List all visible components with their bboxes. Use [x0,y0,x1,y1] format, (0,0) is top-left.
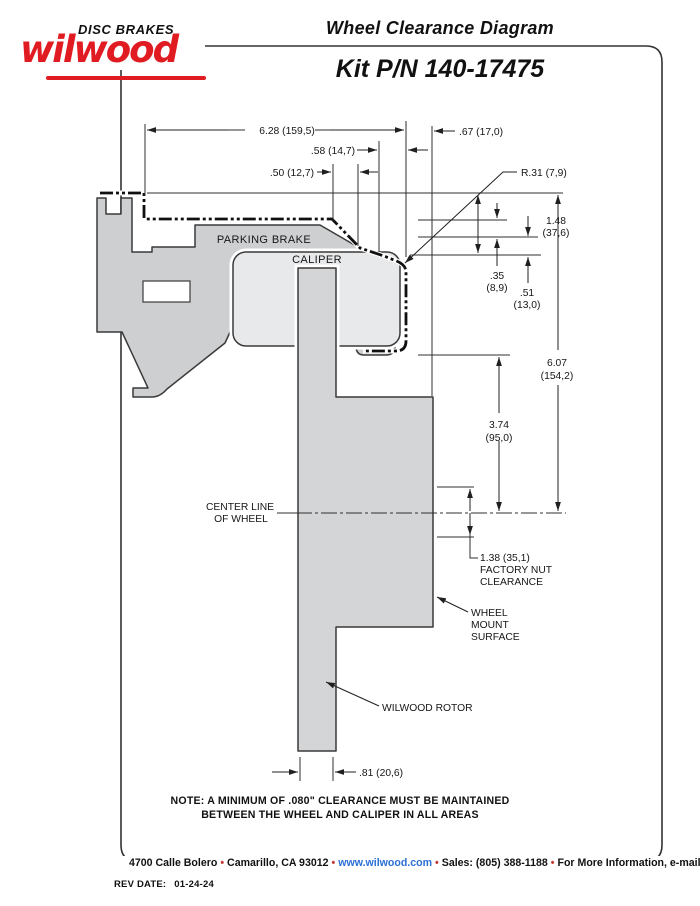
label-mount-2: MOUNT [471,620,509,631]
dim-35-mm: (8,9) [486,283,507,294]
rev-date-label: REV DATE: [114,879,166,890]
dim-607-in: 6.07 [547,358,567,369]
dim-607-mm: (154,2) [541,371,574,382]
dim-148-mm: (37,6) [543,228,570,239]
dim-148-in: 1.48 [546,216,566,227]
wheel-clearance-sheet: DISC BRAKES wilwood Wheel Clearance Diag… [0,0,700,906]
label-rotor: WILWOOD ROTOR [382,703,473,714]
page-title: Wheel Clearance Diagram [240,18,640,39]
knuckle-window [143,281,190,302]
label-centerline-1: CENTER LINE [206,502,274,513]
footer-city: Camarillo, CA 93012 [227,857,328,869]
footer-address: 4700 Calle Bolero [129,857,217,869]
label-centerline-2: OF WHEEL [214,514,268,525]
dim-51-mm: (13,0) [514,300,541,311]
label-nut-3: CLEARANCE [480,577,543,588]
dim-total-width: 6.28 (159,5) [259,126,315,137]
rev-date-value: 01-24-24 [174,879,214,890]
dim-step-50: .50 (12,7) [270,168,314,179]
dim-step-58: .58 (14,7) [311,146,355,157]
footer-website-link[interactable]: www.wilwood.com [338,857,432,869]
label-nut-2: FACTORY NUT [480,565,553,576]
bullet-separator: • [432,857,442,869]
dim-lip-width: .67 (17,0) [459,127,503,138]
note-line-1: NOTE: A MINIMUM OF .080" CLEARANCE MUST … [120,795,560,809]
footer-sales-phone: Sales: (805) 388-1188 [442,857,548,869]
label-nut-1: 1.38 (35,1) [480,553,530,564]
footer-contact-line: 4700 Calle Bolero•Camarillo, CA 93012•ww… [121,856,700,871]
dim-374-in: 3.74 [489,420,509,431]
rev-date: REV DATE:01-24-24 [114,879,222,890]
note-line-2: BETWEEN THE WHEEL AND CALIPER IN ALL ARE… [120,809,560,823]
clearance-note: NOTE: A MINIMUM OF .080" CLEARANCE MUST … [120,795,560,822]
label-mount-3: SURFACE [471,632,520,643]
wilwood-logo: DISC BRAKES wilwood [18,20,218,72]
label-mount-1: WHEEL [471,608,508,619]
logo-swoosh-bar [46,76,206,80]
kit-part-number: Kit P/N 140-17475 [220,55,660,84]
footer: 4700 Calle Bolero•Camarillo, CA 93012•ww… [121,853,662,871]
dim-374-mm: (95,0) [486,433,513,444]
clearance-diagram: 6.28 (159,5) .67 (17,0) .58 (14,7) .50 (… [0,0,700,906]
dim-35-in: .35 [490,271,505,282]
dim-51-in: .51 [520,288,535,299]
label-parking-brake: PARKING BRAKE [217,234,311,246]
label-caliper: CALIPER [292,254,342,266]
bullet-separator: • [217,857,227,869]
footer-more-info: For More Information, e-mail: [557,857,700,869]
dim-rotor-width: .81 (20,6) [359,768,403,779]
dim-radius: R.31 (7,9) [521,168,567,179]
logo-wordmark: wilwood [20,28,177,71]
bullet-separator: • [329,857,339,869]
